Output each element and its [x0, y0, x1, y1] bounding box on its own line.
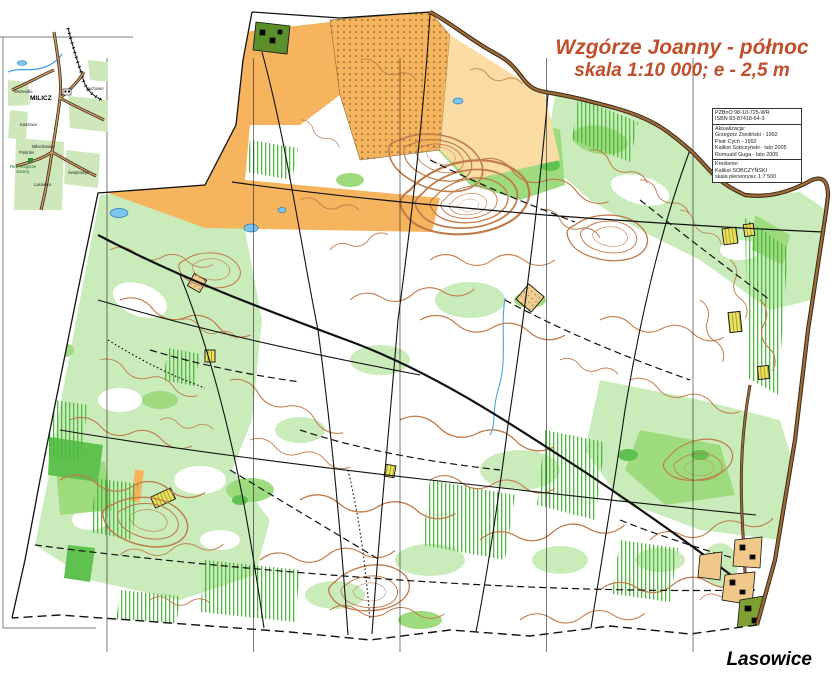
credit-line: Romuald Guga - lato 2005 — [715, 152, 799, 158]
title-line-1: Wzgórze Joanny - północ — [548, 36, 816, 60]
inset-label-kaszowo: Kaszowo — [20, 122, 38, 127]
inset-label-wszewilki: Wszewilki — [14, 89, 32, 94]
credit-line: ISBN 83-87418-64-3 — [715, 116, 799, 122]
title-line-2: skala 1:10 000; e - 2,5 m — [548, 60, 816, 82]
inset-location-map: Wszewilki Duchowo MILICZ Kaszowo Miłocho… — [8, 10, 112, 212]
village-label-lasowice: Lasowice — [726, 649, 812, 671]
credits-id-section: PZBnO 98-10-725-WR ISBN 83-87418-64-3 — [713, 109, 801, 124]
credit-line: Kalikst Sobczyński - lato 2005 — [715, 145, 799, 151]
inset-vegetation — [8, 60, 108, 210]
inset-reserve-icon — [28, 158, 33, 163]
map-sheet: { "title": { "line1": "Wzgórze Joanny - … — [0, 0, 838, 682]
inset-label-postolin: Postolin — [19, 150, 35, 155]
map-title: Wzgórze Joanny - północ skala 1:10 000; … — [548, 36, 816, 82]
inset-castle-icon — [63, 89, 71, 95]
credit-line: skala pierworysu: 1:7 500 — [715, 174, 799, 180]
credits-update-section: Aktualizacja: Grzegorz Zwoliński - 1992 … — [713, 124, 801, 159]
inset-label-milochowice: Miłochowice — [32, 144, 55, 149]
inset-label-lasowice: Lasowice — [34, 182, 52, 187]
credits-box: PZBnO 98-10-725-WR ISBN 83-87418-64-3 Ak… — [712, 108, 802, 183]
inset-label-milicz: MILICZ — [30, 95, 52, 102]
inset-label-reserve-2: Joanny — [16, 169, 30, 174]
inset-label-swietoszyn: Świętoszyn — [68, 170, 90, 175]
inset-label-duchowo: Duchowo — [86, 86, 104, 91]
main-map — [0, 0, 838, 682]
inset-river — [8, 54, 62, 72]
credits-drawing-section: Kreślenie: Kalikst SOBCZYŃSKI skala pier… — [713, 159, 801, 181]
